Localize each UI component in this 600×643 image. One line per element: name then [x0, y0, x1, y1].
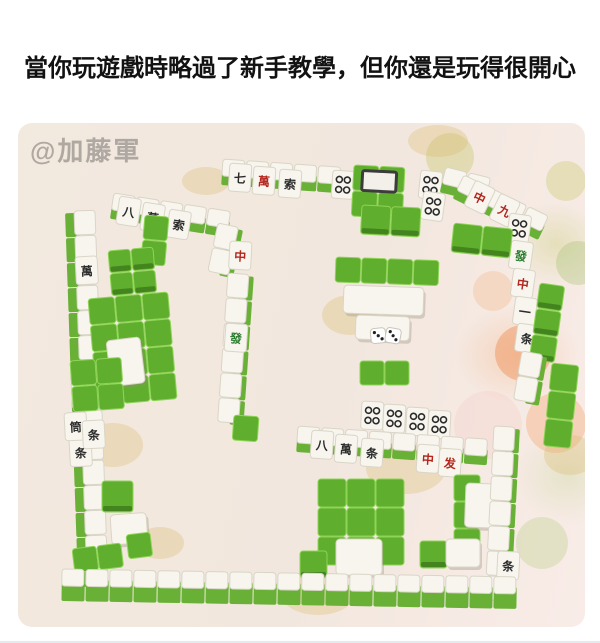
svg-text:萬: 萬 [339, 441, 352, 457]
svg-text:条: 条 [86, 427, 101, 443]
svg-text:中: 中 [421, 451, 434, 467]
svg-text:索: 索 [283, 176, 296, 192]
svg-text:中: 中 [234, 248, 247, 264]
svg-text:萬: 萬 [257, 173, 270, 189]
svg-text:条: 条 [501, 558, 516, 574]
caption-text: 當你玩遊戲時略過了新手教學，但你還是玩得很開心 [0, 54, 600, 84]
svg-text:發: 發 [228, 330, 243, 346]
svg-text:七: 七 [233, 171, 246, 186]
svg-text:筒: 筒 [69, 419, 82, 435]
mahjong-maze-illustration: 八萬索萬筒条七萬索中九發中一条中發八萬条中发筒条条 [18, 123, 585, 627]
svg-text:一: 一 [518, 305, 532, 321]
svg-text:索: 索 [171, 217, 185, 234]
svg-text:萬: 萬 [80, 263, 93, 279]
svg-text:中: 中 [516, 276, 530, 293]
svg-text:条: 条 [364, 445, 379, 461]
watermark: @加藤軍 [30, 131, 141, 168]
svg-text:发: 发 [442, 455, 457, 471]
svg-text:八: 八 [314, 438, 329, 453]
meme-photo: 八萬索萬筒条七萬索中九發中一条中發八萬条中发筒条条 @加藤軍 [18, 123, 585, 627]
